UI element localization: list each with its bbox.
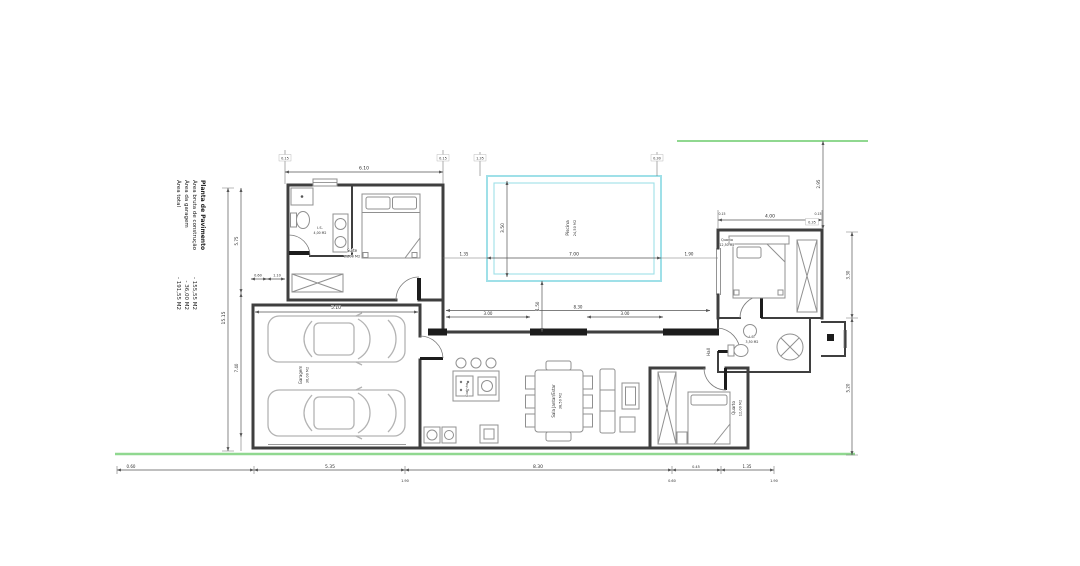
suite-door-swing <box>396 277 419 300</box>
shower-cross <box>781 338 799 356</box>
kitchen-stool <box>456 358 466 368</box>
dim-window2: 3.00 <box>621 311 630 316</box>
kitchen-stool <box>471 358 481 368</box>
wall-pier <box>663 329 719 336</box>
pillow <box>393 197 417 209</box>
dim-step-a: 0.60 <box>254 274 262 278</box>
fridge <box>480 425 498 443</box>
garage-entry-door-leaf <box>420 357 443 360</box>
bath2-label: I.S. <box>749 335 754 339</box>
kitchen-label: Cozinha <box>465 383 469 397</box>
cars <box>268 313 405 439</box>
dining-chair <box>526 376 536 389</box>
dim-right-upper: 3.30 <box>846 270 851 279</box>
dim-right-top: 2.95 <box>816 179 821 188</box>
dining-chair <box>583 414 593 427</box>
dim-tick-d: 0.30 <box>653 157 661 161</box>
bedroom1-window <box>717 248 721 295</box>
car-2 <box>268 387 405 439</box>
car-1 <box>268 313 405 365</box>
kitchen-stool <box>486 358 496 368</box>
dim-bottom-sub1: 1.90 <box>401 479 409 483</box>
dining-chair <box>546 361 571 370</box>
dining-chair <box>583 395 593 408</box>
toilet-tank <box>291 213 297 227</box>
bed-corner <box>734 290 739 295</box>
dim-window1: 3.00 <box>484 311 493 316</box>
washer <box>424 427 440 443</box>
wall-pier <box>428 329 447 336</box>
utility-door-panel <box>827 334 834 341</box>
dim-garage-width: 5.10 <box>331 305 341 311</box>
pillow <box>737 247 761 258</box>
garage-label: Garagem <box>298 366 303 385</box>
ottoman <box>620 417 635 432</box>
dim-bottom-seg1: 0.60 <box>127 464 136 469</box>
dim-suite-width: 6.10 <box>359 166 369 172</box>
suite-label: Suite <box>347 248 358 253</box>
garage-entry-door-swing <box>420 336 443 358</box>
hall-label: Hall <box>706 348 711 356</box>
bedroom2-area: 12,00 M2 <box>739 400 743 416</box>
dim-bottom-seg4: 0.45 <box>692 465 700 469</box>
dim-left-total: 15.15 <box>221 311 227 324</box>
dim-pool-height: 3.50 <box>500 223 506 233</box>
bath1-faucet <box>301 195 304 198</box>
bedroom1-label: Quarto <box>721 238 733 242</box>
toilet-tank <box>728 345 734 356</box>
dim-bottom-sub2: 0.60 <box>668 479 676 483</box>
bedroom2-door-leaf <box>724 368 727 390</box>
bath1-label: I.S. <box>317 226 322 230</box>
floor-plan-drawing: 6.10 5.10 4.00 3.00 3.00 8.30 7.00 3.50 … <box>0 0 1080 566</box>
bed-corner <box>412 253 417 258</box>
dim-windows-total: 8.30 <box>574 305 583 310</box>
suite-area: 16,00 M2 <box>344 255 360 259</box>
bedroom1-area: 12,50 M2 <box>720 243 735 247</box>
dim-pool-width: 7.00 <box>569 252 579 258</box>
dim-bottom-seg2: 5.35 <box>325 464 335 470</box>
garage-area: 36,00 M2 <box>306 367 310 383</box>
bath2-area: 3,50 M2 <box>746 340 759 344</box>
vanity-counter <box>333 214 348 252</box>
dim-pool-offset-right: 1.90 <box>685 252 694 257</box>
bedroom2-label: Quarto <box>731 401 736 415</box>
suite-bath-door-leaf <box>289 251 310 255</box>
burner <box>460 389 462 391</box>
bed-corner <box>778 290 783 295</box>
bath1-area: 4,00 M2 <box>314 231 327 235</box>
garage-walls <box>253 305 420 448</box>
bedroom1-door-swing <box>740 296 762 318</box>
toilet-bowl <box>734 345 748 357</box>
burner <box>460 381 462 383</box>
dim-bottom-sub3: 1.90 <box>770 479 778 483</box>
wall-pier <box>530 329 587 336</box>
pillow <box>691 395 727 405</box>
dim-right-top-offset: 0.35 <box>808 221 816 225</box>
dim-right-lower: 5.20 <box>846 383 851 392</box>
dim-left-lower: 7.40 <box>234 363 239 372</box>
bed-corner <box>363 253 368 258</box>
dining-chair <box>526 395 536 408</box>
toilet-bowl <box>297 212 310 229</box>
bench <box>677 432 687 444</box>
bedroom1-door-leaf <box>760 296 763 318</box>
sofa <box>600 369 615 433</box>
dim-wall-tick: 0.15 <box>814 212 821 216</box>
dim-terrace-depth: 1.50 <box>535 301 540 310</box>
pool-area: 24,50 M2 <box>573 220 577 236</box>
dim-bottom-seg3: 8.30 <box>533 464 543 470</box>
pillow <box>366 197 390 209</box>
dim-tick-a: 0.15 <box>281 157 289 161</box>
floor-plan-page: Planta de Pavimento Área bruta de constr… <box>0 0 1080 566</box>
dim-bottom-seg5: 1.35 <box>743 464 752 469</box>
burner <box>467 381 469 383</box>
dining-label: Sala Jantar/Estar <box>551 384 556 418</box>
dim-left-upper: 5.75 <box>234 236 239 245</box>
pool-label: Piscina <box>565 220 571 236</box>
dim-bedroom1-width: 4.00 <box>765 214 775 220</box>
dim-pool-offset-left: 1.35 <box>460 252 469 257</box>
dining-chair <box>546 432 571 441</box>
dim-tick-c: 1.35 <box>476 157 484 161</box>
dining-chair <box>526 414 536 427</box>
bedroom1-headboard <box>729 236 789 244</box>
suite-door-leaf <box>417 278 421 300</box>
dim-step-b: 1.10 <box>273 274 281 278</box>
dim-wall-tick: 0.15 <box>718 212 725 216</box>
dining-area: 38,50 M2 <box>559 393 563 409</box>
dining-chair <box>583 376 593 389</box>
dim-tick-b: 0.15 <box>439 157 447 161</box>
